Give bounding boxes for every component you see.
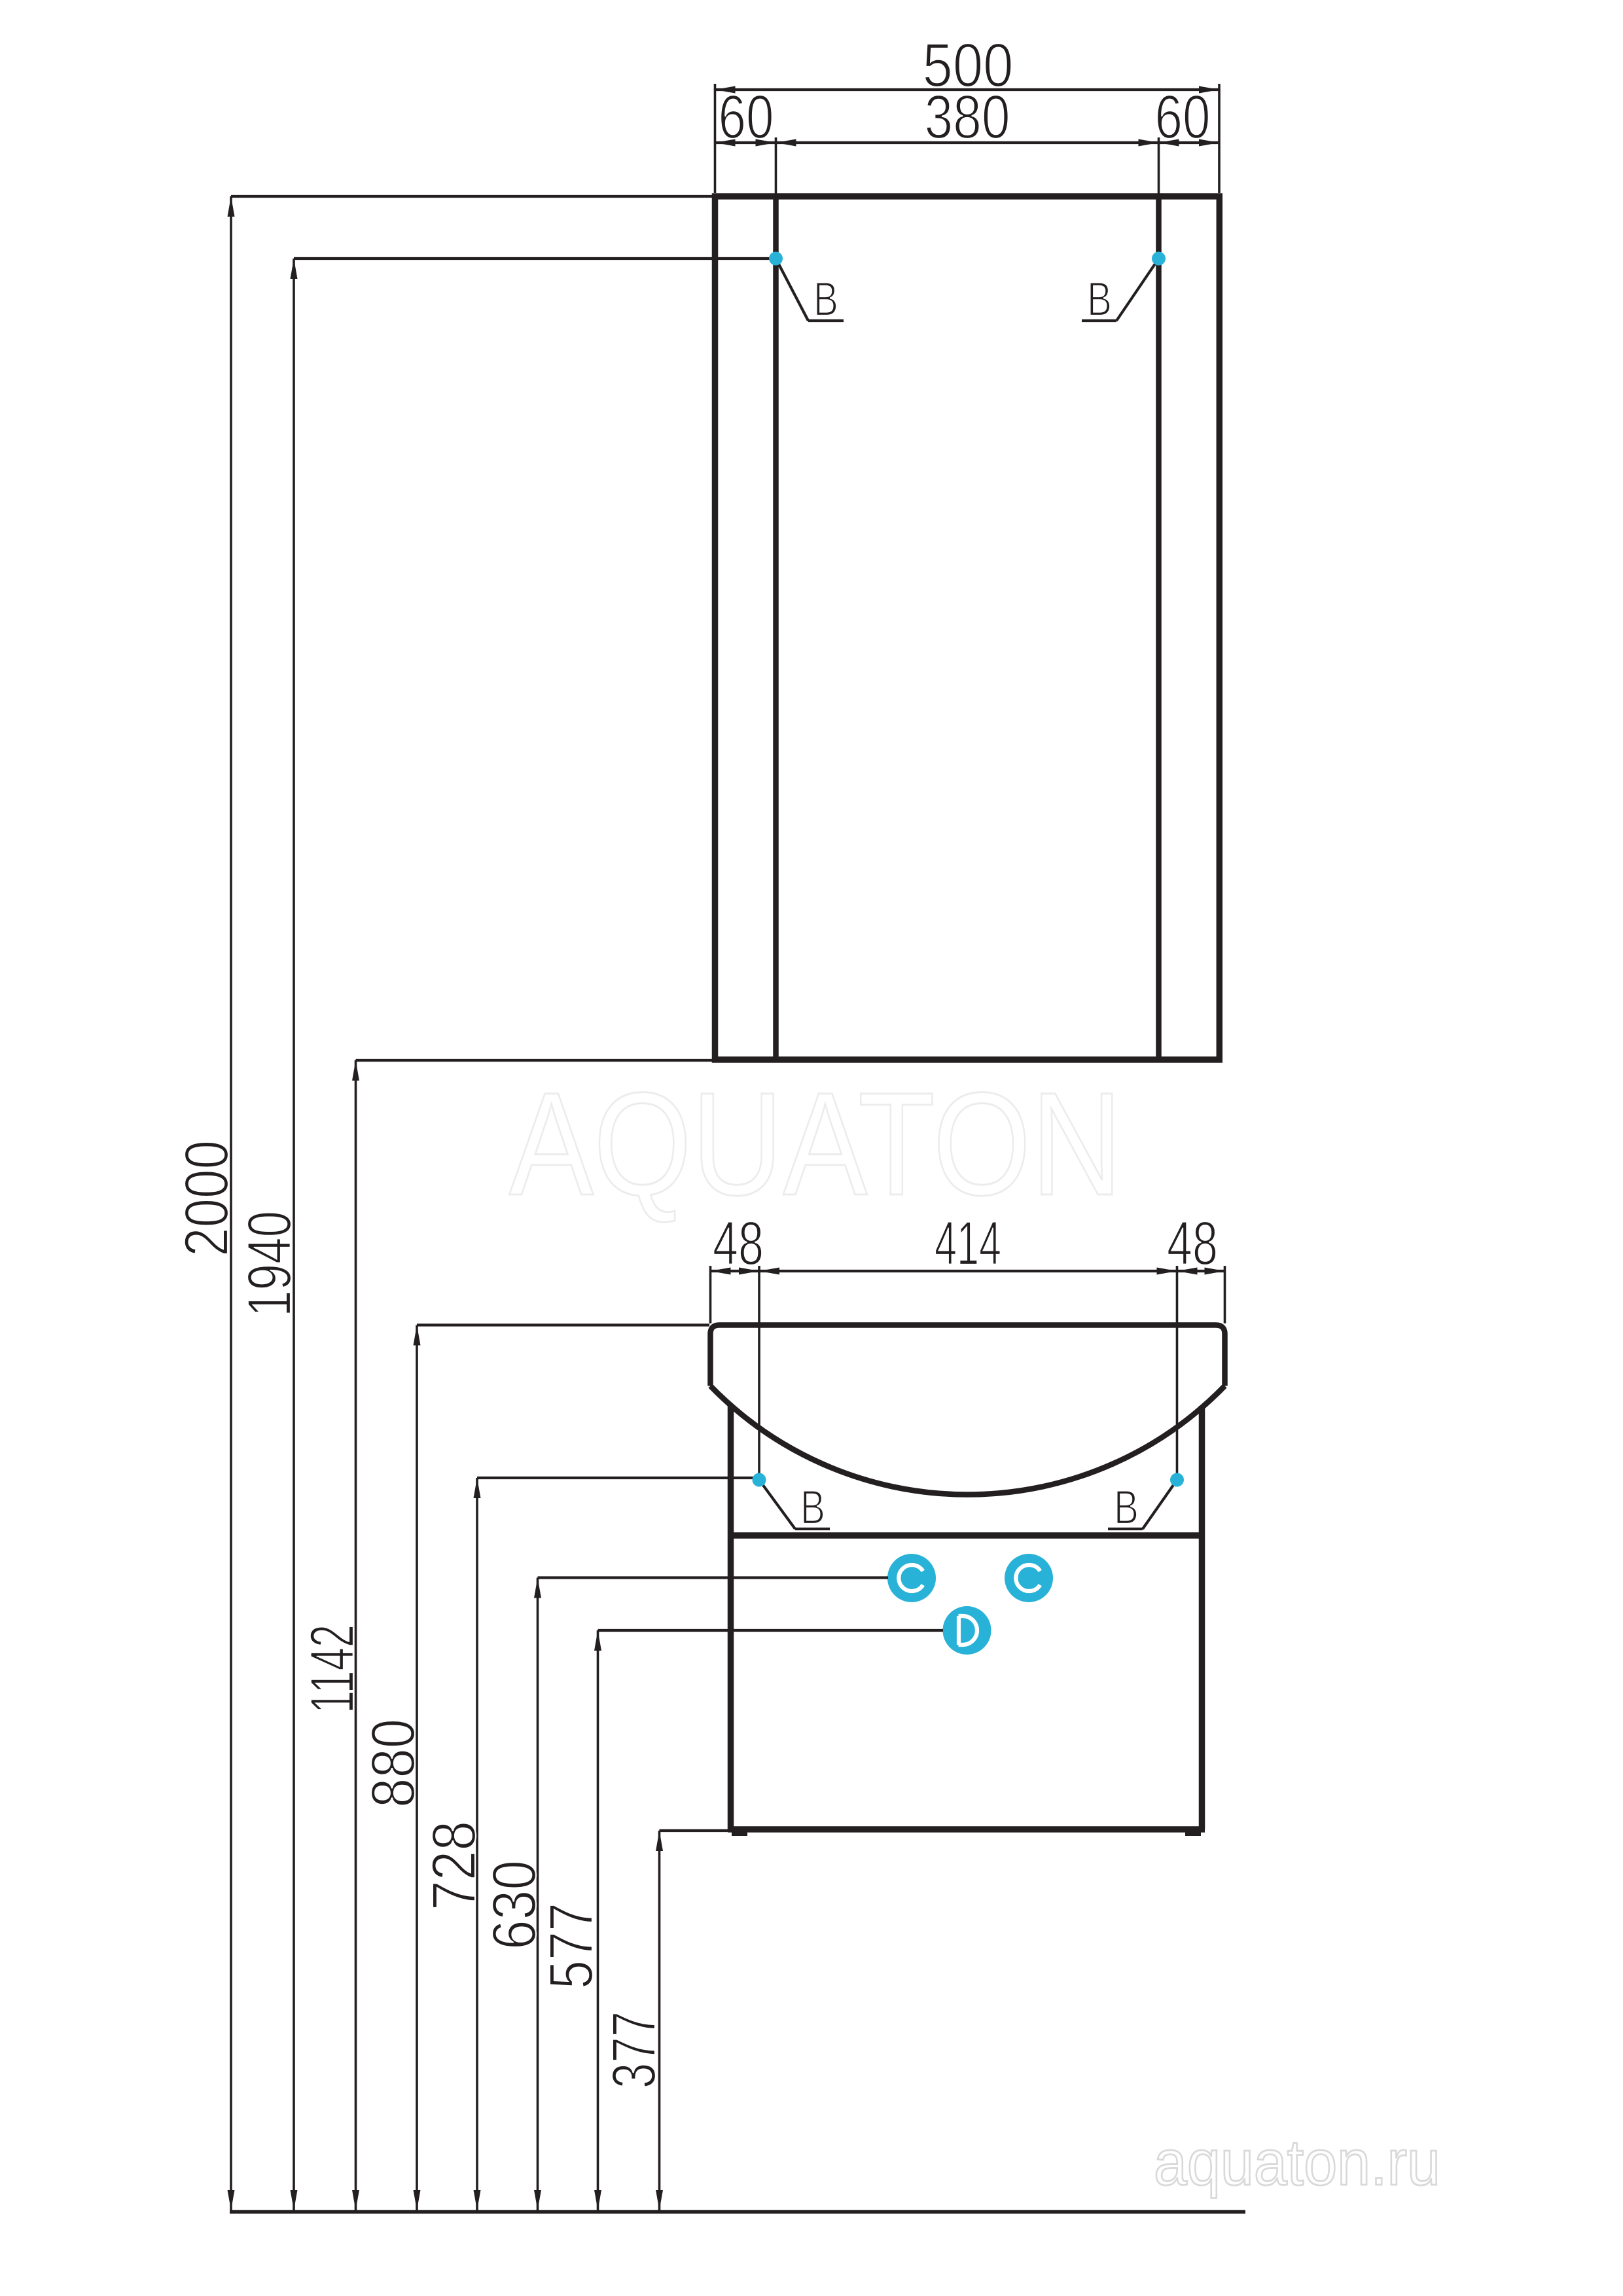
- svg-text:60: 60: [1155, 82, 1211, 152]
- svg-text:728: 728: [419, 1821, 489, 1910]
- svg-text:2000: 2000: [172, 1140, 241, 1257]
- svg-text:60: 60: [719, 82, 774, 152]
- svg-text:380: 380: [925, 82, 1010, 152]
- svg-text:1940: 1940: [235, 1211, 304, 1317]
- svg-text:aquaton.ru: aquaton.ru: [1154, 2126, 1440, 2198]
- svg-text:48: 48: [1167, 1209, 1218, 1278]
- svg-text:B: B: [1114, 1481, 1139, 1534]
- svg-text:880: 880: [359, 1719, 428, 1808]
- svg-text:48: 48: [713, 1209, 764, 1278]
- svg-text:B: B: [1087, 273, 1112, 326]
- svg-text:B: B: [800, 1481, 825, 1534]
- svg-text:377: 377: [599, 2011, 669, 2089]
- svg-text:414: 414: [935, 1209, 1001, 1278]
- svg-text:B: B: [813, 273, 838, 326]
- svg-text:577: 577: [537, 1903, 606, 1989]
- svg-text:1142: 1142: [298, 1624, 367, 1713]
- svg-text:AQUATON: AQUATON: [509, 1062, 1122, 1226]
